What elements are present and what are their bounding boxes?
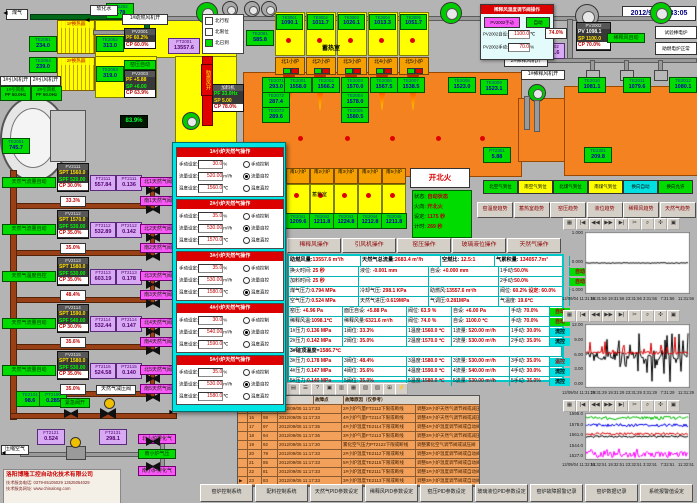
valve-position-value: 33.3% — [60, 196, 86, 207]
radio-label: 手动控制 — [251, 266, 269, 271]
gas-panel-input[interactable]: 30.0 — [198, 316, 223, 325]
alarm-row[interactable]: 16982012/09/05 11:17:334#小炉气量FT2114下限或断线… — [238, 414, 479, 423]
chart-toolbar-icon-⌕[interactable]: ⌕ — [641, 218, 654, 230]
gas-panel-input[interactable]: 35.0 — [198, 368, 223, 377]
alarm-cell: 2012/09/05 11:17:33 — [278, 450, 342, 458]
dilution-unit: ℃ — [530, 32, 535, 37]
alarm-cell: 94 — [262, 432, 278, 440]
label-南3天然气阀: 南3天然气阀 — [140, 290, 176, 300]
kv-label: 换火时间: — [290, 268, 311, 274]
gas-panel-radio-流量自控[interactable]: 流量自控 — [243, 173, 283, 181]
op-button-玻璃液位操作[interactable]: 玻璃液位操作 — [452, 238, 506, 253]
gas-panel-label: 手动设定: — [179, 214, 198, 219]
label-南5天然气阀: 南5天然气阀 — [140, 384, 176, 394]
gas-panel-4: 4#小炉天然气操作手动设定:30.0%流量设定:540.00m³/h温度设定:1… — [176, 303, 284, 353]
chart-toolbar-icon-✣[interactable]: ✣ — [654, 310, 667, 322]
panel-cell: 4手动: 30.0% — [510, 367, 550, 376]
tag-TE2051: TE2051745.7 — [2, 138, 30, 154]
tag-value: 557.84 — [91, 182, 115, 189]
panel-cell: 手动: 70.0% — [510, 307, 550, 316]
alarm-cell: 2012/09/05 11:17:33 — [278, 405, 342, 413]
side-button-助燃电炉正常[interactable]: 助燃电炉正常 — [655, 42, 697, 55]
gas-panel-input[interactable]: 1580.0 — [198, 392, 223, 401]
side-button-试验棒电炉[interactable]: 试验棒电炉 — [655, 26, 697, 39]
kv-label: 气累积量: — [496, 257, 518, 263]
label-1#稀释风机开: 1#稀释风机开 — [521, 70, 565, 80]
alarm-row[interactable]: 20792012/09/05 11:17:332#小炉温度TE2112下限或断线… — [238, 450, 479, 459]
chart-xtick: 15:31:56 — [591, 296, 607, 301]
gas-panel-input[interactable]: 30.0 — [198, 160, 223, 169]
scada-kiln-control-screen: 2012/9/5 11:33:05 洛阳博隆工控自动化技术有限公司 技术服务电话… — [0, 0, 697, 503]
legend-item: 北已到 — [203, 37, 243, 48]
kv-label: 稀释风温: — [290, 318, 311, 324]
kv-label: 煤气压力: — [290, 288, 311, 294]
radio-icon — [243, 225, 250, 232]
tag-value: 603.19 — [91, 276, 115, 283]
alarm-row[interactable]: 22812012/09/05 11:17:331#小炉温度TE2111下限或断线… — [238, 468, 479, 477]
tag-PT2112: PT21120.142 — [116, 222, 142, 238]
op-button-稀释风操作[interactable]: 稀释风操作 — [287, 238, 341, 253]
gas-panel-radio-流量自控[interactable]: 流量自控 — [243, 381, 283, 389]
port-dot — [366, 193, 371, 198]
alarm-row[interactable]: 21852012/09/05 11:17:335#小炉温度TE2115下限或断线… — [238, 459, 479, 468]
kv-value: 1098.1℃ — [311, 318, 332, 324]
dilution-input[interactable]: 1100.0 — [508, 30, 530, 39]
feeder-box — [50, 110, 86, 162]
fan-icon — [182, 112, 200, 130]
gas-panel-input[interactable]: 540.00 — [198, 328, 223, 337]
tag-value: 239.0 — [30, 64, 56, 71]
tag-value: 1538.5 — [398, 84, 424, 91]
controller-加料机: 加料机PF 33.0HzSP 5.00CP 78.0% — [212, 84, 244, 112]
company-name: 洛阳博隆工控自动化技术有限公司 — [6, 471, 118, 480]
op-button-引风机操作[interactable]: 引风机操作 — [342, 238, 396, 253]
chart-xtick: 23:32:51 — [626, 462, 642, 467]
label-紧急阀开: 紧急阀开 — [60, 398, 90, 408]
gas-panel-row: 手动设定:35.0% — [179, 264, 241, 274]
regenerator-label-south: 蓄热室 — [312, 191, 342, 198]
gas-panel-radio-手动控制[interactable]: 手动控制 — [243, 161, 283, 169]
trend-chart-2 — [585, 324, 690, 388]
chart-toolbar-icon-|◀[interactable]: |◀ — [576, 218, 589, 230]
tag-FT2121: FT21210.524 — [37, 429, 65, 445]
panel-span-cell: 3#碹顶温度=1586.7℃ — [289, 347, 562, 356]
data-panel-row: 加料时间: 25 秒2手动:50.0%自动 — [289, 276, 562, 286]
tag-value: 1209.6 — [286, 219, 310, 226]
kv-value: 48.4% — [358, 358, 374, 364]
north-port-box[interactable]: 北5小炉 — [399, 57, 429, 75]
gas-panel-label: 流量设定: — [179, 382, 198, 387]
nav-button-配料控制系统[interactable]: 配料控制系统 — [255, 484, 308, 502]
stirrer-rod — [524, 96, 530, 130]
legend-item: 北行程 — [203, 15, 243, 26]
kv-label: 5流量: — [453, 378, 467, 384]
gas-panel-input[interactable]: 530.00 — [198, 380, 223, 389]
valve-position-value: 35.0% — [60, 384, 86, 395]
kv-label: 阀位: — [500, 288, 511, 294]
kv-label: 阀位: — [408, 308, 419, 314]
panel-cell: 助燃风:13557.6 m³/h — [429, 287, 499, 296]
kv-label: 自设: — [430, 268, 441, 274]
chart-toolbar-icon-◀◀[interactable]: ◀◀ — [589, 310, 602, 322]
chart-toolbar-icon-▶|[interactable]: ▶| — [615, 218, 628, 230]
gas-panel-radio-温度直控[interactable]: 温度直控 — [243, 393, 283, 401]
chart-toolbar-icon-◀◀[interactable]: ◀◀ — [589, 218, 602, 230]
indicator-red — [353, 68, 361, 74]
gas-panel-input[interactable]: 35.0 — [198, 212, 223, 221]
gas-panel-radio-温度直控[interactable]: 温度直控 — [243, 237, 283, 245]
radio-icon — [243, 213, 250, 220]
chart-toolbar-icon-✂[interactable]: ✂ — [628, 218, 641, 230]
dilution-auto-button[interactable]: 自动 — [526, 17, 550, 28]
radio-label: 流量自控 — [251, 226, 269, 231]
port-dot — [286, 38, 291, 43]
kv-label: 空燃比: — [442, 257, 459, 263]
chart-toolbar-icon-▣[interactable]: ▣ — [667, 400, 680, 412]
controller-PV2002: PV2002PV 1098.1SP 1100.0CP 70.0% — [576, 22, 611, 51]
south-port-box[interactable]: 南1小炉 — [286, 168, 310, 184]
panel-cell: 稀释风量:6321.6 m³/h — [343, 317, 407, 326]
gas-panel-unit: ℃ — [223, 290, 228, 295]
kv-value: 530.00 m³/h — [467, 338, 496, 344]
kv-label: 助燃风: — [430, 288, 446, 294]
alarm-cell: 5#小炉温度TE2115下限或断线 — [342, 459, 416, 467]
panel-cell — [429, 277, 499, 286]
gas-panel-radio-流量自控[interactable]: 流量自控 — [243, 225, 283, 233]
chart-xtick: 19:31:29 — [608, 390, 624, 395]
radio-label: 温度直控 — [251, 290, 269, 295]
chart-xtick: 7:31:56 — [661, 296, 675, 301]
gas-panel-row: 温度设定:1590.0℃ — [179, 340, 241, 350]
tag-FT2113: FT2113603.19 — [90, 269, 116, 285]
kv-value: 2683.4 m³/h — [395, 257, 423, 263]
flow-arrow-icon: ◄ — [84, 17, 92, 25]
kv-value: 530.00 m³/h — [467, 378, 496, 384]
fire-status-label: 状态: — [414, 194, 426, 200]
kv-label: 4手动: — [511, 368, 525, 374]
controller-row: CP 35.0% — [58, 371, 88, 378]
alarm-cell — [238, 423, 248, 431]
data-panel-row: 3#压力:0.178 MPa3阀位: 48.4%3温度:1580.0 ℃3流量:… — [289, 356, 562, 366]
kv-label: 3#压力: — [290, 358, 307, 364]
kv-label: 5手动: — [511, 378, 525, 384]
trend-button-天然气趋势[interactable]: 天然气趋势 — [660, 202, 696, 218]
controller-row: SPT 1580.0 — [58, 358, 88, 365]
nav-button-窑炉故障报警记录[interactable]: 窑炉故障报警记录 — [530, 484, 583, 502]
chart-toolbar-icon-▶|[interactable]: ▶| — [615, 400, 628, 412]
gas-panel-input[interactable]: 530.00 — [198, 224, 223, 233]
alarm-cell — [238, 468, 248, 476]
panel-cell: 换火时间: 25 秒 — [289, 267, 359, 276]
tag-value: 1081.1 — [579, 84, 605, 91]
panel-cell: 自设: +6.00 Pa — [452, 307, 510, 316]
data-panel-row: 3#碹顶温度=1586.7℃ — [289, 346, 562, 356]
nav-button-玻璃液位PID参数设定[interactable]: 玻璃液位PID参数设定 — [475, 484, 528, 502]
kv-label: 4流量: — [453, 368, 467, 374]
label-2#引风机开: 2#引风机开 — [30, 76, 61, 86]
nav-button-稀释风PID参数设定[interactable]: 稀释风PID参数设定 — [365, 484, 418, 502]
tag-value: 0.140 — [117, 370, 141, 377]
gas-panel-unit: % — [223, 266, 227, 271]
kv-value: 35.0% — [525, 378, 541, 384]
legend-label: 北已到 — [215, 40, 229, 46]
alarm-cell: 2012/09/05 11:17:36 — [278, 432, 342, 440]
kv-label: 阀位: — [408, 318, 419, 324]
trend-button-窑压趋势[interactable]: 窑压趋势 — [550, 202, 586, 218]
chart-toolbar-icon-▦[interactable]: ▦ — [563, 218, 576, 230]
gas-panel-input[interactable]: 530.00 — [198, 276, 223, 285]
kv-value: 1580.0 ℃ — [422, 358, 444, 364]
gas-panel-row: 温度设定:1580.0℃ — [179, 392, 241, 402]
kv-value: 60.2% 设定: 60.0% — [511, 288, 555, 294]
chart-xtick: 7:32:51 — [661, 462, 675, 467]
gas-panel-radio-手动控制[interactable]: 手动控制 — [243, 213, 283, 221]
kv-value: 35.6% — [358, 368, 374, 374]
panel-cell: 1温度:1560.0 ℃ — [407, 327, 452, 336]
trend-button-稀释风趋势[interactable]: 稀释风趋势 — [623, 202, 659, 218]
chart-ytick: 1578.0 — [558, 422, 583, 428]
nav-button-窑炉控制系统[interactable]: 窑炉控制系统 — [200, 484, 253, 502]
alarm-cell: 调整4#小炉温度调节阀或自动阀 — [416, 423, 479, 431]
gas-panel-input[interactable]: 1580.0 — [198, 288, 223, 297]
tag-value: 1026.1 — [339, 20, 364, 27]
gas-panel-radio-温度直控[interactable]: 温度直控 — [243, 185, 283, 193]
heat-exchanger: 2#换热器 — [57, 57, 95, 91]
regenerator-column-south — [310, 184, 334, 214]
gas-panel-radio-手动控制[interactable]: 手动控制 — [243, 265, 283, 273]
chart-toolbar-icon-✂[interactable]: ✂ — [628, 400, 641, 412]
fire-status-value: 自动状态 — [426, 194, 448, 200]
fan-icon — [440, 2, 462, 24]
valve-position-value: 48.4% — [60, 290, 86, 301]
kv-label: 2手动: — [500, 278, 514, 284]
op-button-天然气操作[interactable]: 天然气操作 — [507, 238, 561, 253]
chart-ytick: 1.000 — [558, 230, 583, 236]
gas-panel-radio-流量自控[interactable]: 流量自控 — [243, 329, 283, 337]
alarm-toolbar-icon-9[interactable]: ⚡ — [395, 383, 408, 395]
panel-cell: 自设: +0.000 mm — [429, 267, 499, 276]
north-port-box[interactable]: 北3小炉 — [337, 57, 367, 75]
tag-value: 0.136 — [117, 182, 141, 189]
fire-direction-button[interactable]: 开北火 — [410, 168, 470, 188]
kv-value: 134057.7m³ — [518, 257, 547, 263]
panel-cell: 3温度:1580.0 ℃ — [407, 357, 452, 366]
chart-toolbar-icon-▶▶[interactable]: ▶▶ — [602, 310, 615, 322]
alarm-cell: 81 — [262, 468, 278, 476]
controller-row: CP 70.0% — [577, 42, 610, 49]
alarm-cell: 1#小炉温度TE2111下限或断线 — [342, 468, 416, 476]
kv-value: 13557.6 m³/h — [312, 257, 343, 263]
panel-cell: 5温度:1580.0 ℃ — [407, 377, 452, 386]
gas-panel-row: 手动设定:30.0% — [179, 316, 241, 326]
gas-panel-label: 流量设定: — [179, 226, 198, 231]
dilution-popup: 稀释风温度调节阀操作PV2002手动自动PV2002自设:1100.0℃PV20… — [480, 4, 554, 60]
chart-toolbar-icon-▶▶[interactable]: ▶▶ — [602, 400, 615, 412]
controller-FV2114: FV2114SPT 1590.0SPF 540.00CP 30.0% — [57, 304, 89, 333]
panel-cell: 1阀位: 33.3% — [343, 327, 407, 336]
dilution-input[interactable]: 70.0 — [508, 43, 530, 52]
kv-value: 1570.0 ℃ — [422, 338, 444, 344]
panel-cell: 5流量: 530.00 m³/h — [452, 377, 510, 386]
controller-row: SPT 1590.0 — [58, 311, 88, 318]
gas-panel-5: 5#小炉天然气操作手动设定:35.0%流量设定:530.00m³/h温度设定:1… — [176, 355, 284, 405]
gas-panel-title: 1#小炉天然气操作 — [177, 148, 283, 157]
port-dot — [410, 38, 415, 43]
kv-value: 530.00 m³/h — [467, 358, 496, 364]
tag-FT2112: FT2112532.89 — [90, 222, 116, 238]
chart-toolbar-icon-▶▶[interactable]: ▶▶ — [602, 218, 615, 230]
gas-panel-unit: m³/h — [223, 330, 232, 335]
indicator-red — [384, 68, 392, 74]
chart-toolbar-icon-✣[interactable]: ✣ — [654, 218, 667, 230]
gas-panel-radio-手动控制[interactable]: 手动控制 — [243, 369, 283, 377]
panel-cell: 2流量: 530.00 m³/h — [452, 337, 510, 346]
gas-panel-input[interactable]: 1560.0 — [198, 184, 223, 193]
gas-panel-radio-流量自控[interactable]: 流量自控 — [243, 277, 283, 285]
trend-button-窑温度趋势[interactable]: 窑温度趋势 — [477, 202, 513, 218]
controller-PV2003: PV2003PF +5.88SP +6.00CP 63.9% — [124, 70, 156, 98]
dilution-manual-button[interactable]: PV2002手动 — [484, 17, 520, 28]
gas-panel-input[interactable]: 520.00 — [198, 172, 223, 181]
alarm-row[interactable]: 17972012/09/05 11:17:354#小炉温度TE2114下限或断线… — [238, 423, 479, 432]
gas-panel-label: 温度设定: — [179, 290, 198, 295]
trend-button-液位趋势[interactable]: 液位趋势 — [587, 202, 623, 218]
radio-icon — [243, 185, 250, 192]
port-dot — [379, 38, 384, 43]
chart-xtick: 15:32:51 — [591, 462, 607, 467]
kv-value: 12.5:1 — [459, 257, 475, 263]
chart-toolbar-icon-◀◀[interactable]: ◀◀ — [589, 400, 602, 412]
north-port-box[interactable]: 北2小炉 — [306, 57, 336, 75]
south-port-box[interactable]: 南2小炉 — [310, 168, 334, 184]
chart-xtick: 11:31:56 — [678, 296, 694, 301]
nav-button-天然气PID参数设定[interactable]: 天然气PID参数设定 — [310, 484, 363, 502]
gas-panel-radio-温度直控[interactable]: 温度直控 — [243, 289, 283, 297]
gas-panel-input[interactable]: 35.0 — [198, 264, 223, 273]
gas-panel-label: 温度设定: — [179, 186, 198, 191]
panel-cell: 3#压力:0.178 MPa — [289, 357, 343, 366]
chart-toolbar-icon-⌕[interactable]: ⌕ — [641, 310, 654, 322]
chart-xtick: 7:31:29 — [661, 390, 675, 395]
tag-value: 1079.6 — [624, 84, 650, 91]
chart-toolbar-icon-|◀[interactable]: |◀ — [576, 310, 589, 322]
tag-TE2001: TE20011558.0 — [284, 77, 312, 93]
data-panel-row: 煤气压力:0.794 MPa冷却气压: 298.1 KPa助燃风:13557.6… — [289, 286, 562, 296]
alarm-cell: 79 — [262, 450, 278, 458]
kv-label: 3流量: — [453, 358, 467, 364]
gas-panel-radio-温度直控[interactable]: 温度直控 — [243, 341, 283, 349]
dilution-valve-position: 74.0% — [545, 28, 567, 39]
tag-TE2012: TE20121080.1 — [669, 77, 697, 93]
radio-label: 手动控制 — [251, 370, 269, 375]
op-button-窑压操作[interactable]: 窑压操作 — [397, 238, 451, 253]
gas-auto-label: 天然气温度自控 — [2, 271, 56, 282]
regen-tag: TE30031026.1 — [338, 14, 365, 30]
gas-panel-unit: % — [223, 214, 227, 219]
chart-toolbar-icon-⌕[interactable]: ⌕ — [641, 400, 654, 412]
alarm-cell — [238, 450, 248, 458]
chart-toolbar-icon-▣[interactable]: ▣ — [667, 310, 680, 322]
kv-label: 1温度: — [408, 328, 422, 334]
legend-label: 北行程 — [215, 18, 229, 24]
dilution-popup-title: 稀释风温度调节阀操作 — [481, 5, 553, 14]
chart-ytick: 9.00 — [558, 337, 583, 343]
indicator-red — [415, 68, 423, 74]
north-port-box[interactable]: 北4小炉 — [368, 57, 398, 75]
tag-value: 585.8 — [247, 37, 273, 44]
tag-value: 0.178 — [117, 276, 141, 283]
tag-value: 1578.0 — [342, 99, 368, 106]
indicator-green — [345, 68, 353, 74]
kv-value: 25 秒 — [311, 278, 324, 284]
kv-label: 2#压力: — [290, 338, 307, 344]
nav-button-窑压PID参数设定[interactable]: 窑压PID参数设定 — [420, 484, 473, 502]
chart-toolbar-icon-▶|[interactable]: ▶| — [615, 310, 628, 322]
label-南4天然气阀: 南4天然气阀 — [140, 337, 176, 347]
chart-xtick: 3:31:56 — [643, 296, 657, 301]
gas-panel-row: 流量设定:530.00m³/h — [179, 224, 241, 234]
nav-button-窑炉数据记录[interactable]: 窑炉数据记录 — [585, 484, 638, 502]
south-port-box[interactable]: 南4小炉 — [358, 168, 382, 184]
legend-swatch-icon — [205, 17, 213, 25]
valve-position-value: 35.0% — [60, 243, 86, 254]
alarm-cell: 21 — [248, 459, 262, 467]
gas-panel-row: 流量设定:520.00m³/h — [179, 172, 241, 182]
kv-value: 0.136 MPa — [307, 328, 331, 334]
north-port-box[interactable]: 北1小炉 — [275, 57, 305, 75]
panel-cell: 手动: 70.0% — [510, 317, 550, 326]
alarm-cell: 98 — [262, 414, 278, 422]
alarm-row[interactable]: 19922012/09/05 11:17:30雾化空气压力PT2122下限或断线… — [238, 441, 479, 450]
gas-panel-title: 4#小炉天然气操作 — [177, 304, 283, 313]
fire-status-row: 状态: 自动状态 — [414, 192, 470, 202]
alarm-row[interactable]: 18942012/09/05 11:17:363#小炉气量FT2113下限或断线… — [238, 432, 479, 441]
gas-auto-label: 天然气流量自动 — [2, 365, 56, 376]
nav-button-系统报警值设定[interactable]: 系统报警值设定 — [640, 484, 693, 502]
chart-xtick: 3:31:29 — [643, 390, 657, 395]
chart-toolbar-icon-▦[interactable]: ▦ — [563, 310, 576, 322]
radio-icon — [243, 381, 250, 388]
legend-item: 北限位 — [203, 26, 243, 37]
alarm-cell: 16 — [248, 414, 262, 422]
heat-exchanger: 1#换热器 — [57, 20, 95, 54]
controller-row: CP 60.0% — [125, 42, 155, 49]
alarm-cell — [238, 432, 248, 440]
south-port-box[interactable]: 南3小炉 — [334, 168, 358, 184]
gas-panel-input[interactable]: 1590.0 — [198, 340, 223, 349]
gas-panel-input[interactable]: 1570.0 — [198, 236, 223, 245]
gas-panel-radio-手动控制[interactable]: 手动控制 — [243, 317, 283, 325]
trend-button-蓄热室趋势[interactable]: 蓄热室趋势 — [514, 202, 550, 218]
chart-toolbar-icon-✂[interactable]: ✂ — [628, 310, 641, 322]
chart-toolbar-icon-✣[interactable]: ✣ — [654, 400, 667, 412]
panel-cell: 气温度: 19.6℃ — [499, 297, 570, 306]
gas-auto-label: 天然气流量自动 — [2, 318, 56, 329]
tag-value: 1570.0 — [342, 84, 368, 91]
chart-toolbar-icon-▣[interactable]: ▣ — [667, 218, 680, 230]
tag-value: 1011.7 — [308, 20, 333, 27]
bubbler-box — [654, 70, 668, 81]
tag-value: 5.88 — [484, 154, 510, 161]
south-port-box[interactable]: 南5小炉 — [382, 168, 406, 184]
status-chip-换向允许: 换向允许 — [658, 180, 693, 194]
kv-value: +6.96 Pa — [301, 308, 323, 314]
tag-FT2114: FT2114532.44 — [90, 316, 116, 332]
tag-TE2011: TE20111079.6 — [623, 77, 651, 93]
tag-TE2004: TE20041578.0 — [341, 92, 369, 108]
kv-value: 74.0 % — [419, 318, 436, 324]
tag-value: 1090.1 — [277, 20, 302, 27]
